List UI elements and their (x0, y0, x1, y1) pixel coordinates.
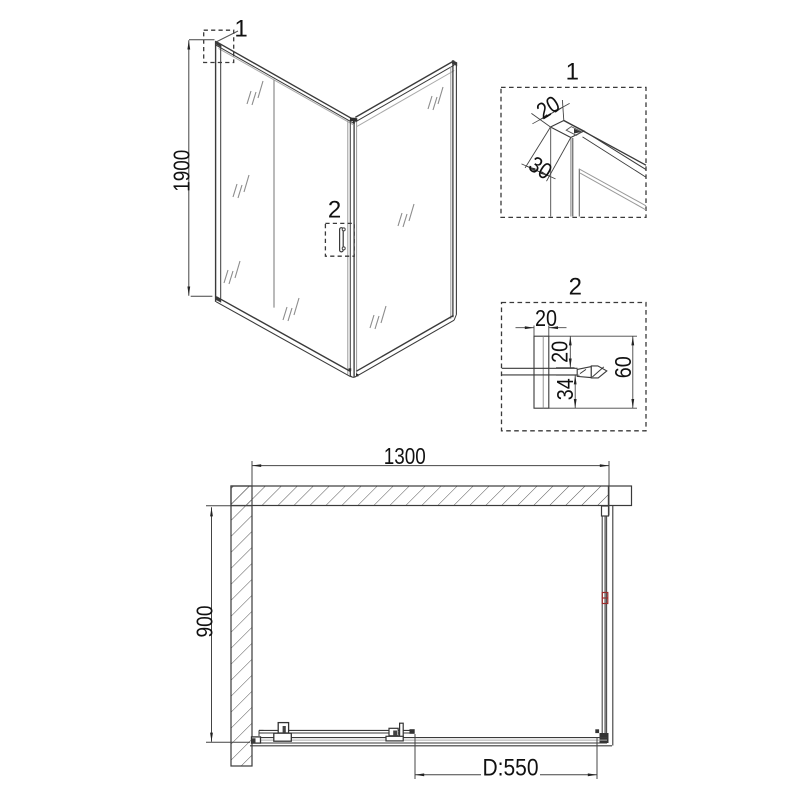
svg-text:1: 1 (566, 59, 579, 86)
svg-text:20: 20 (535, 305, 557, 331)
svg-text:20: 20 (547, 341, 573, 363)
svg-text:D:550: D:550 (483, 755, 539, 782)
svg-text:1: 1 (234, 16, 247, 43)
svg-text:60: 60 (610, 356, 636, 378)
svg-text:900: 900 (192, 606, 218, 638)
svg-text:1300: 1300 (384, 443, 426, 469)
svg-text:2: 2 (569, 274, 582, 301)
svg-text:1900: 1900 (168, 150, 194, 192)
svg-text:30: 30 (524, 151, 556, 185)
svg-text:20: 20 (532, 90, 564, 124)
svg-text:2: 2 (328, 197, 341, 224)
svg-text:34: 34 (552, 378, 578, 400)
